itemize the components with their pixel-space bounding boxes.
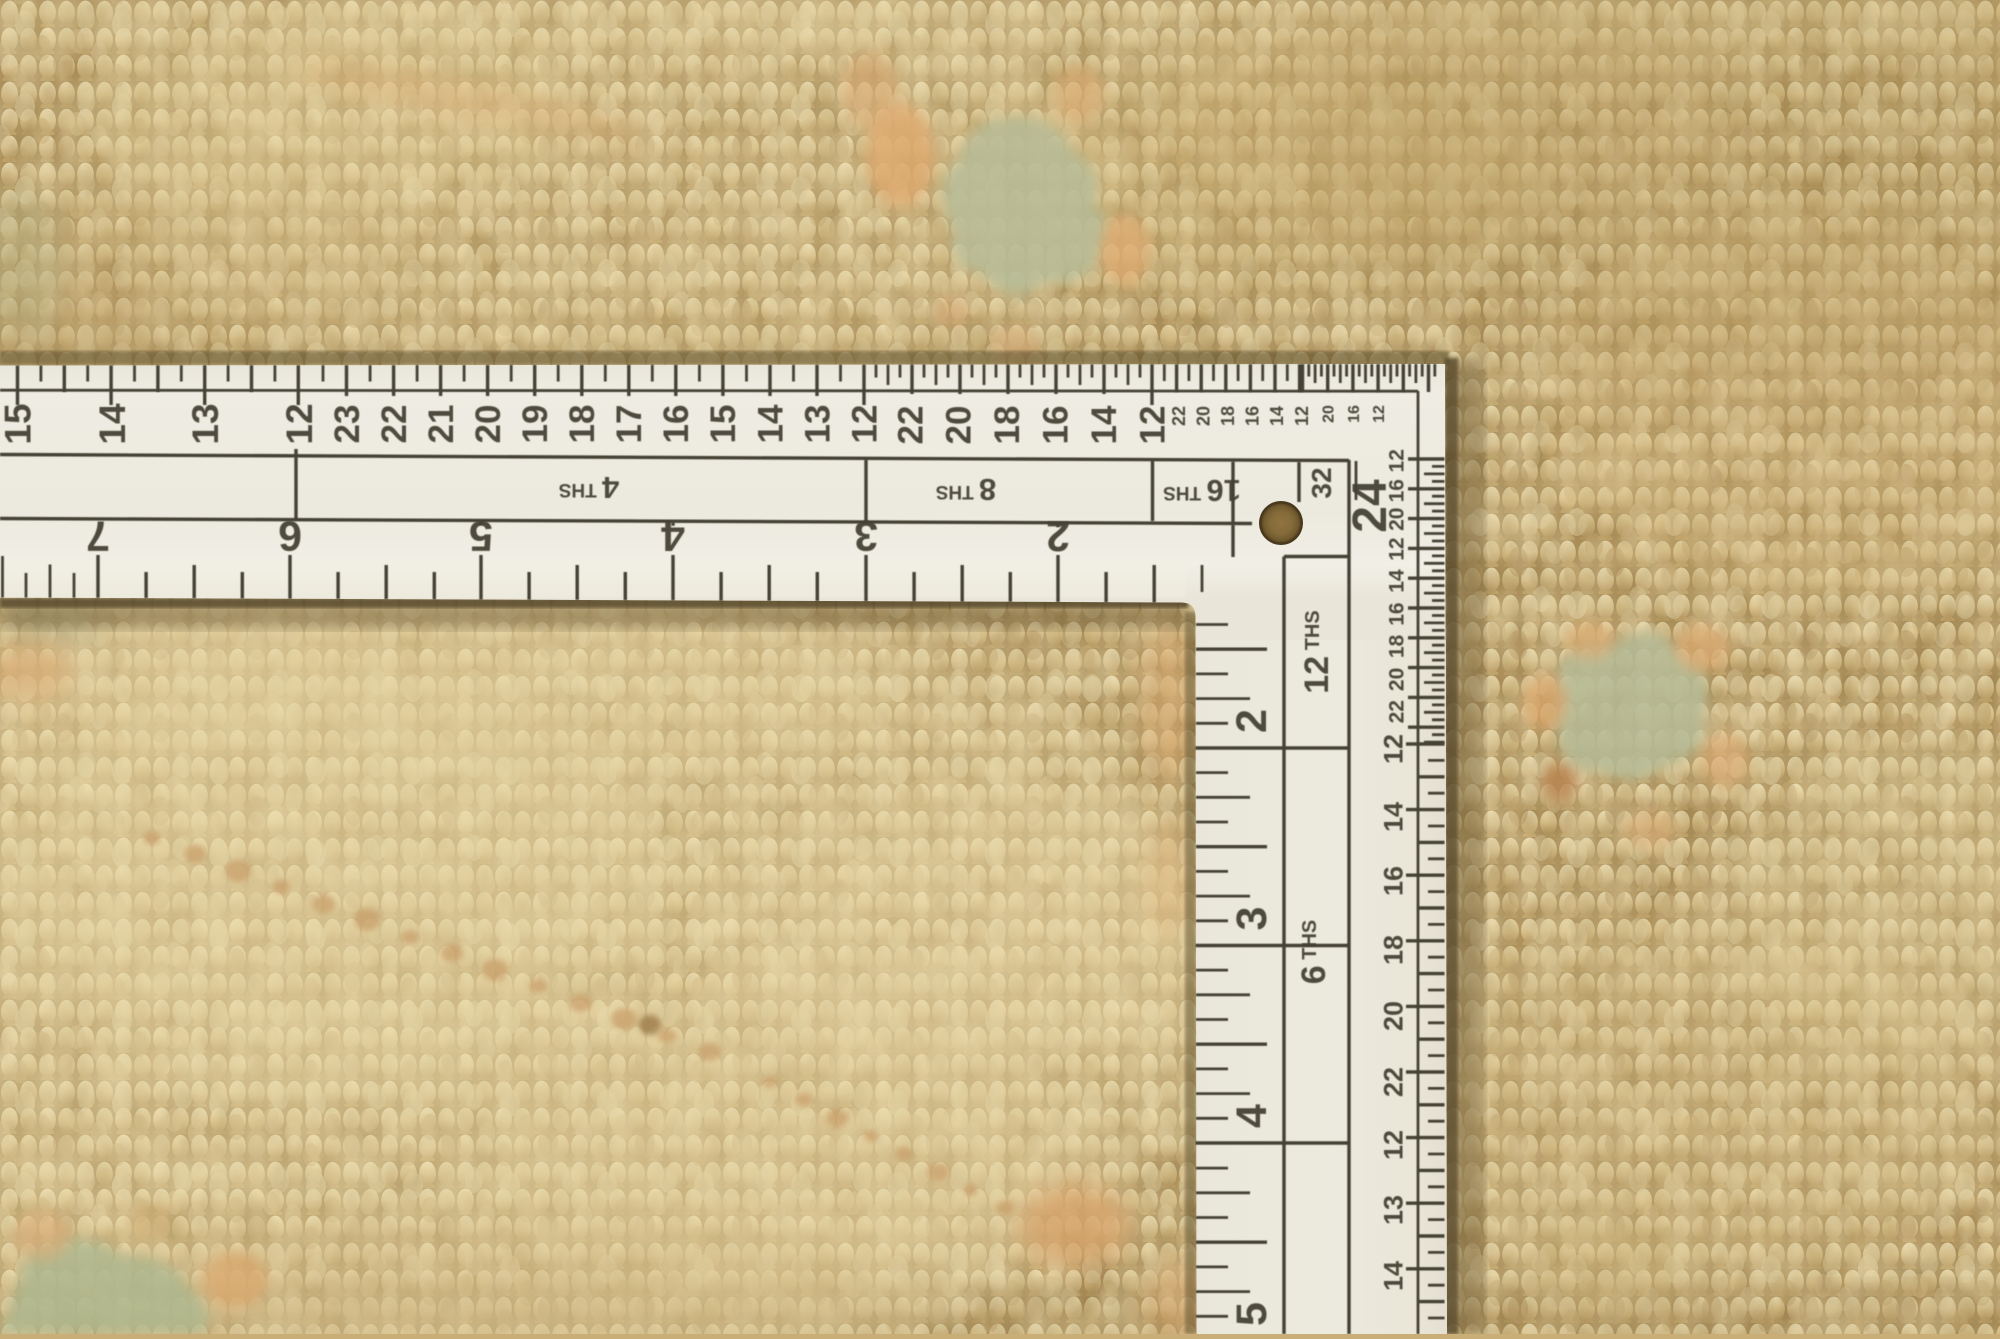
svg-text:14: 14 [1267,406,1287,426]
svg-text:17: 17 [610,405,649,444]
svg-text:16: 16 [1346,405,1363,423]
svg-text:16: 16 [1385,602,1408,625]
svg-text:12: 12 [1371,405,1388,423]
svg-text:20: 20 [1385,668,1408,691]
svg-text:15: 15 [0,403,38,444]
svg-text:12: 12 [1378,734,1408,764]
svg-text:22: 22 [891,406,930,445]
svg-text:14: 14 [1378,1261,1408,1291]
svg-text:16: 16 [657,405,696,444]
svg-text:13: 13 [1378,1195,1408,1225]
svg-text:2: 2 [1228,709,1276,733]
svg-text:21: 21 [422,405,461,444]
svg-text:12: 12 [1292,406,1312,426]
svg-text:13: 13 [798,405,837,444]
svg-text:7: 7 [86,511,110,559]
svg-text:5: 5 [1228,1302,1276,1326]
svg-text:16: 16 [1378,866,1408,896]
svg-text:12: 12 [279,403,320,444]
svg-text:22: 22 [1378,1067,1408,1097]
svg-text:12: 12 [1378,1130,1408,1160]
svg-text:20: 20 [1321,405,1338,423]
svg-text:20: 20 [1193,406,1213,426]
svg-text:14: 14 [1085,405,1124,444]
svg-text:18: 18 [563,405,602,444]
svg-text:14: 14 [1378,802,1408,832]
svg-text:32: 32 [1306,467,1337,498]
svg-text:14: 14 [751,404,790,443]
svg-text:20: 20 [1378,1001,1408,1031]
svg-text:14: 14 [92,403,133,445]
svg-text:20: 20 [1385,508,1408,531]
svg-text:16: 16 [1243,406,1263,426]
svg-text:23: 23 [328,405,367,444]
svg-text:19: 19 [516,405,555,444]
svg-text:22: 22 [1169,406,1189,426]
svg-text:12: 12 [845,405,884,444]
svg-text:12: 12 [1385,537,1408,560]
svg-text:4: 4 [661,511,685,559]
svg-text:20: 20 [940,406,979,445]
svg-text:20: 20 [469,405,508,444]
svg-text:22: 22 [1385,700,1408,723]
svg-text:18: 18 [1218,406,1238,426]
svg-text:18: 18 [1378,935,1408,965]
svg-text:6: 6 [278,511,302,559]
svg-text:12: 12 [1385,449,1408,472]
svg-text:2: 2 [1046,511,1070,559]
svg-text:13: 13 [185,403,226,444]
svg-text:16: 16 [1385,479,1408,502]
svg-text:15: 15 [704,405,743,444]
svg-text:16: 16 [1036,406,1075,445]
svg-text:18: 18 [988,406,1027,445]
svg-text:12: 12 [1133,406,1172,445]
svg-text:4: 4 [1228,1104,1276,1128]
svg-text:22: 22 [375,405,414,444]
svg-text:5: 5 [469,511,493,559]
svg-text:14: 14 [1385,569,1408,593]
svg-text:18: 18 [1385,634,1408,658]
svg-text:3: 3 [1228,907,1276,931]
svg-text:3: 3 [854,511,878,559]
